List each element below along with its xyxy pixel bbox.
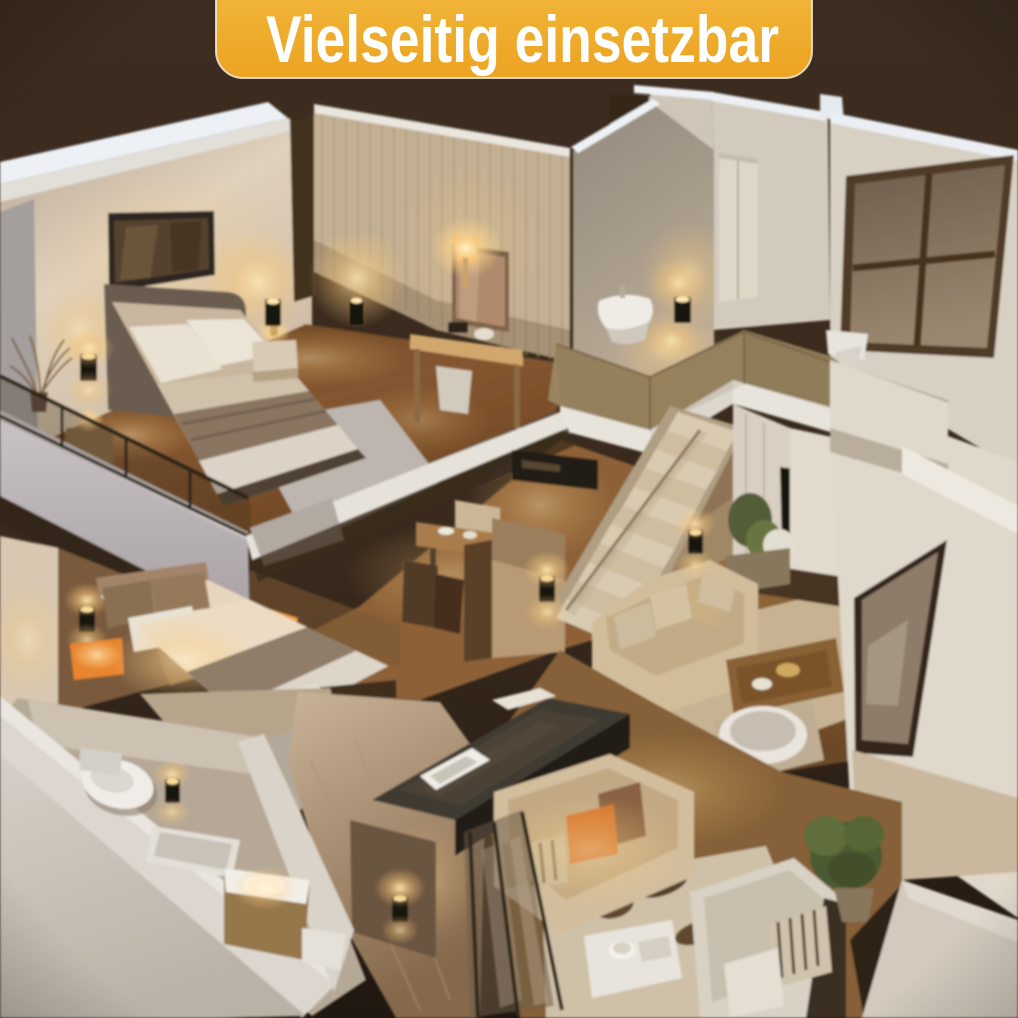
svg-text:Vielseitig einsetzbar: Vielseitig einsetzbar bbox=[266, 2, 779, 76]
